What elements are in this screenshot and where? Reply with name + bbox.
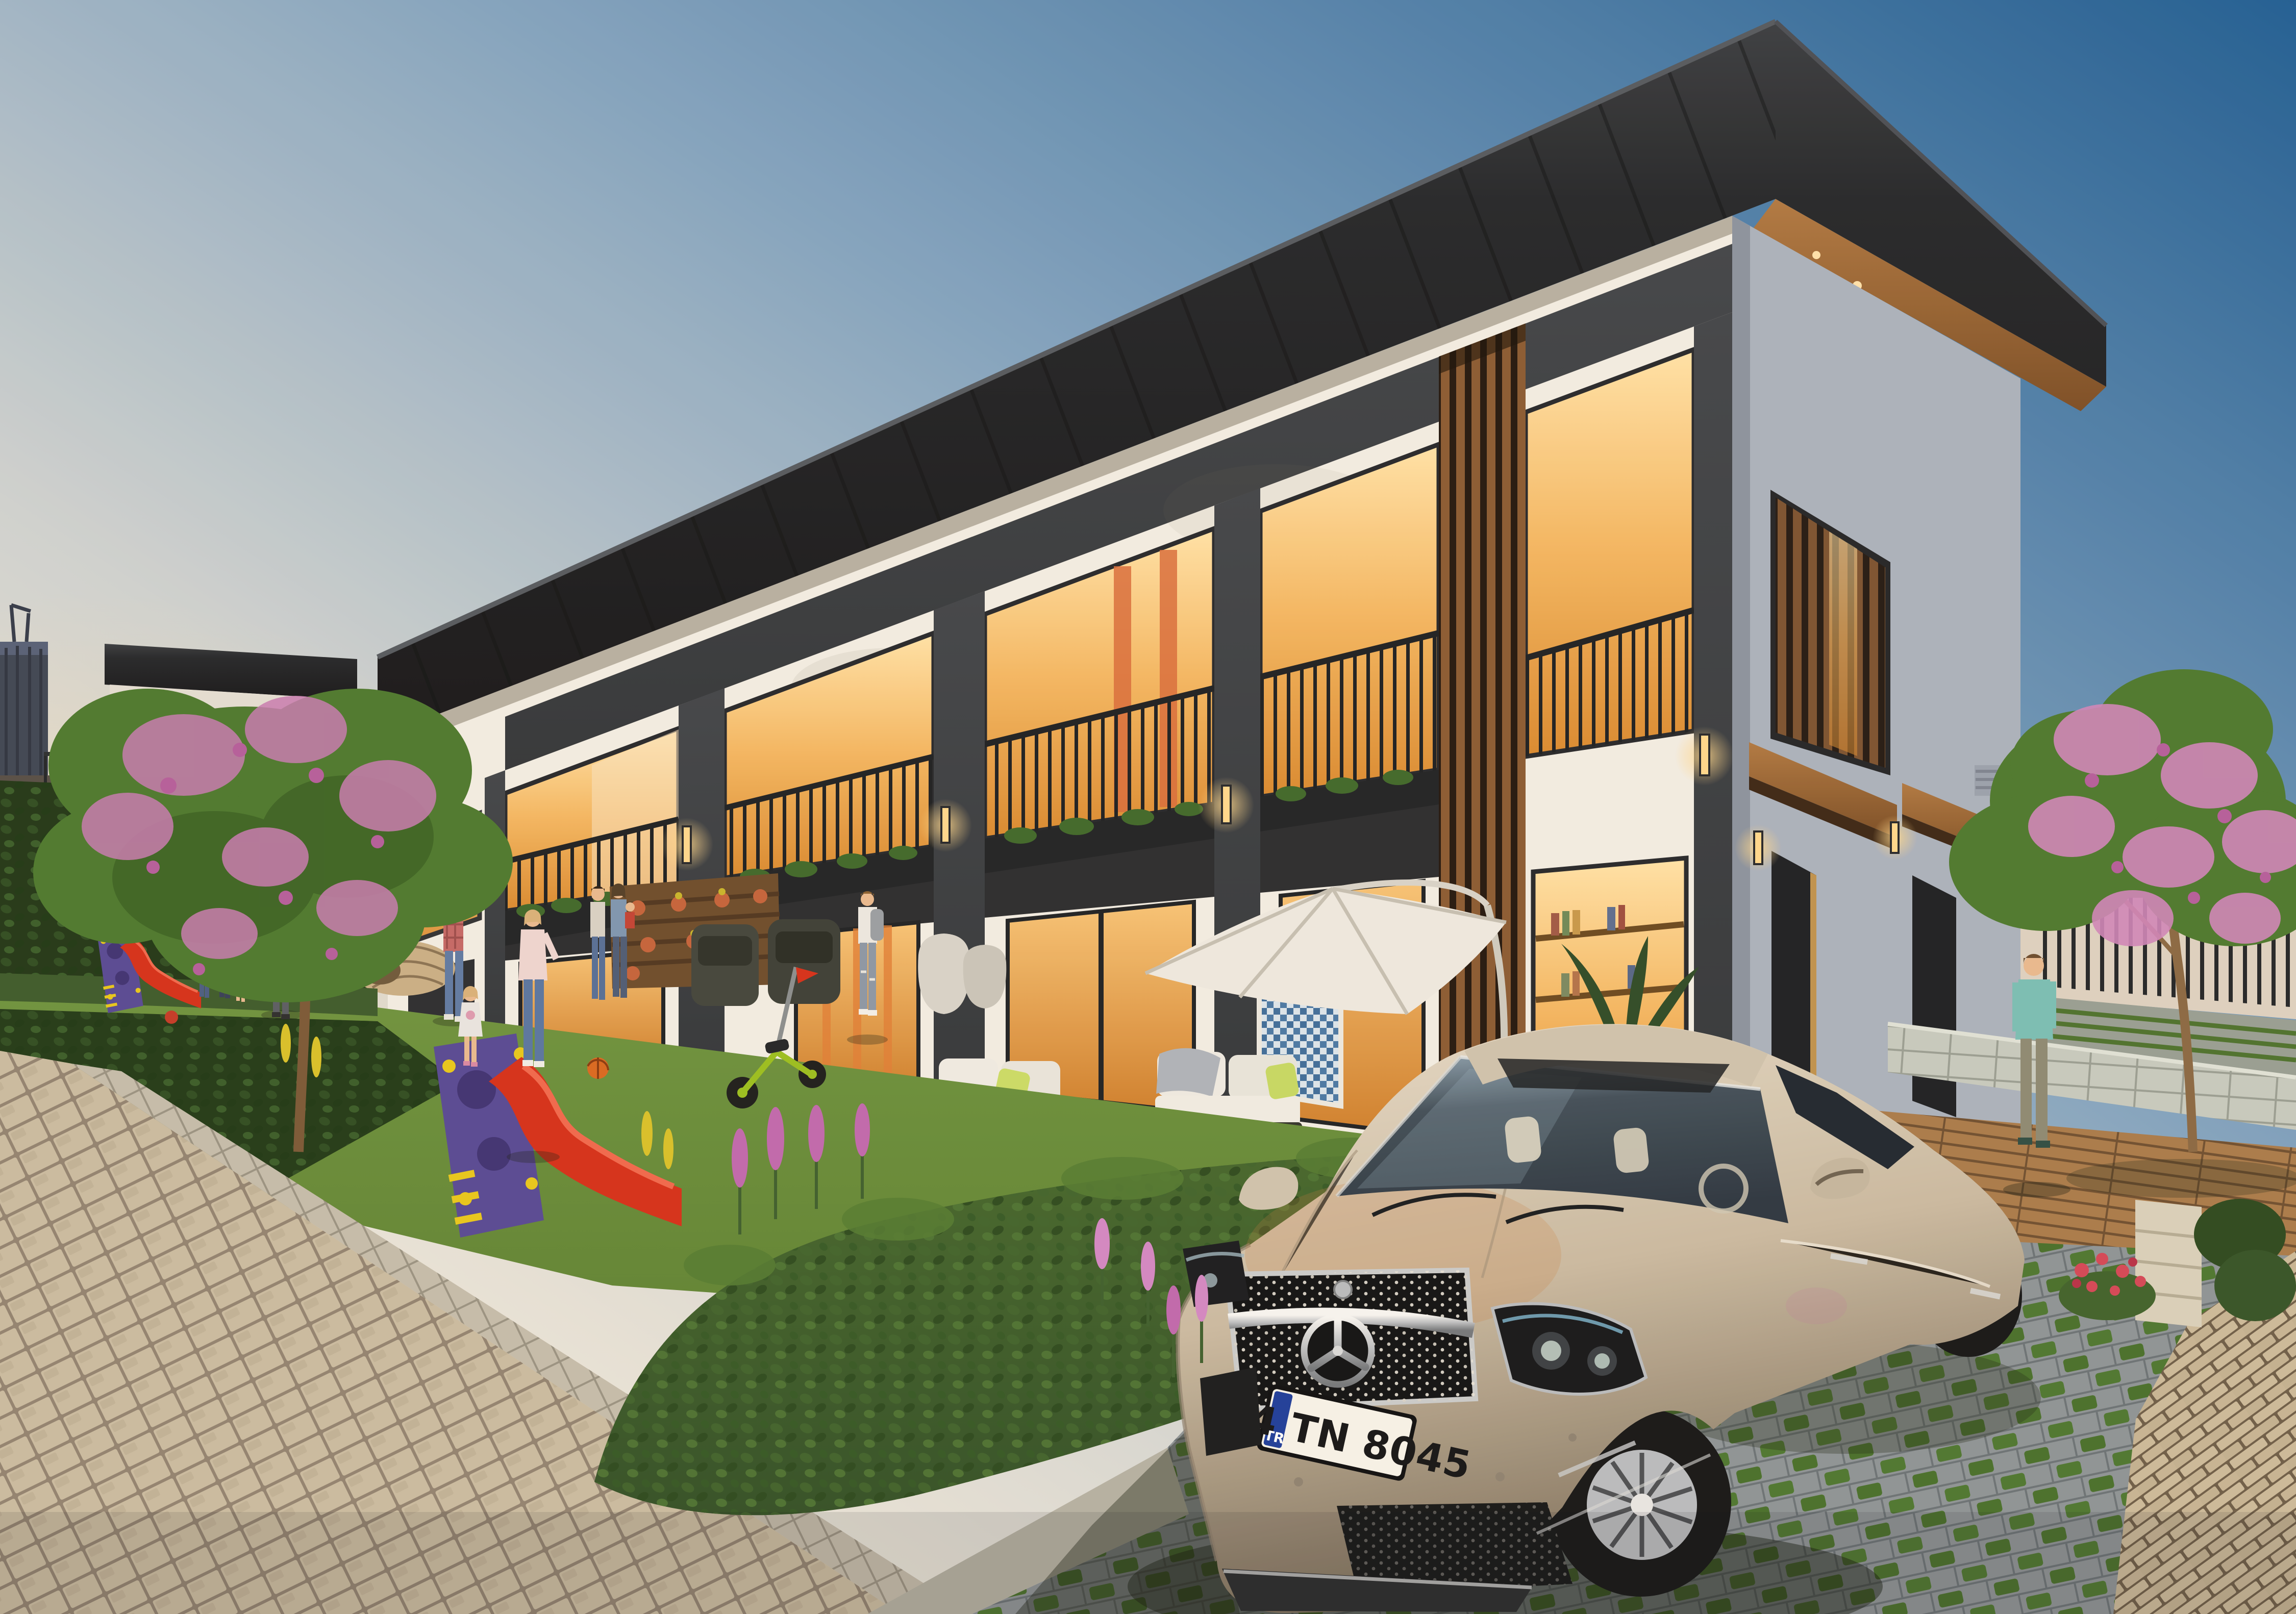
render-canvas: TR 34 TN 8045 (0, 0, 2296, 1614)
architectural-render: TR 34 TN 8045 (0, 0, 2296, 1614)
bottom-vignette (0, 1512, 2296, 1614)
warm-grade-overlay (0, 0, 2296, 1614)
